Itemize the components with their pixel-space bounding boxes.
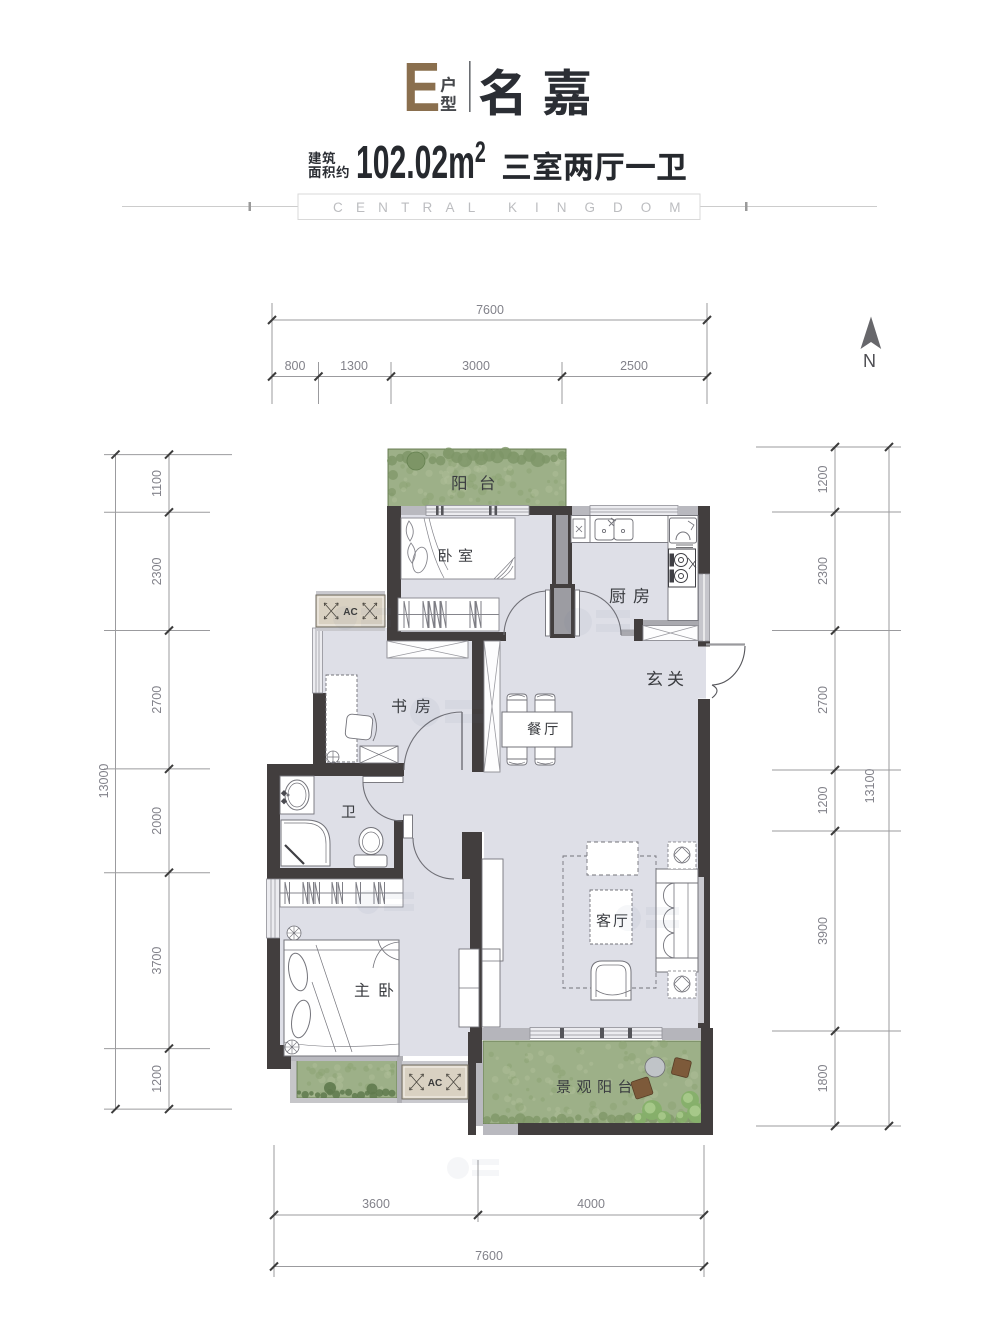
svg-text:2300: 2300 xyxy=(150,557,164,585)
svg-text:102.02m2: 102.02m2 xyxy=(356,136,486,189)
svg-text:1200: 1200 xyxy=(816,466,830,494)
svg-text:2300: 2300 xyxy=(816,557,830,585)
svg-text:2700: 2700 xyxy=(816,686,830,714)
svg-text:13100: 13100 xyxy=(863,769,877,804)
svg-text:2700: 2700 xyxy=(150,686,164,714)
svg-text:7600: 7600 xyxy=(476,303,504,317)
svg-text:800: 800 xyxy=(285,359,306,373)
svg-text:2000: 2000 xyxy=(150,807,164,835)
svg-text:3000: 3000 xyxy=(462,359,490,373)
svg-text:E: E xyxy=(403,49,440,126)
svg-text:1100: 1100 xyxy=(150,470,164,497)
svg-text:2500: 2500 xyxy=(620,359,648,373)
svg-text:7600: 7600 xyxy=(475,1249,503,1263)
svg-text:3900: 3900 xyxy=(816,917,830,945)
svg-text:CENTRAL: CENTRAL xyxy=(333,200,488,215)
svg-text:3700: 3700 xyxy=(150,947,164,975)
svg-text:N: N xyxy=(863,351,876,371)
svg-text:1300: 1300 xyxy=(340,359,368,373)
svg-text:1200: 1200 xyxy=(816,787,830,815)
svg-text:3600: 3600 xyxy=(362,1197,390,1211)
svg-text:KINGDOM: KINGDOM xyxy=(508,200,699,215)
svg-text:1800: 1800 xyxy=(816,1065,830,1093)
svg-text:AC: AC xyxy=(428,1078,442,1089)
svg-text:4000: 4000 xyxy=(577,1197,605,1211)
svg-text:1200: 1200 xyxy=(150,1065,164,1093)
svg-text:13000: 13000 xyxy=(97,764,111,799)
